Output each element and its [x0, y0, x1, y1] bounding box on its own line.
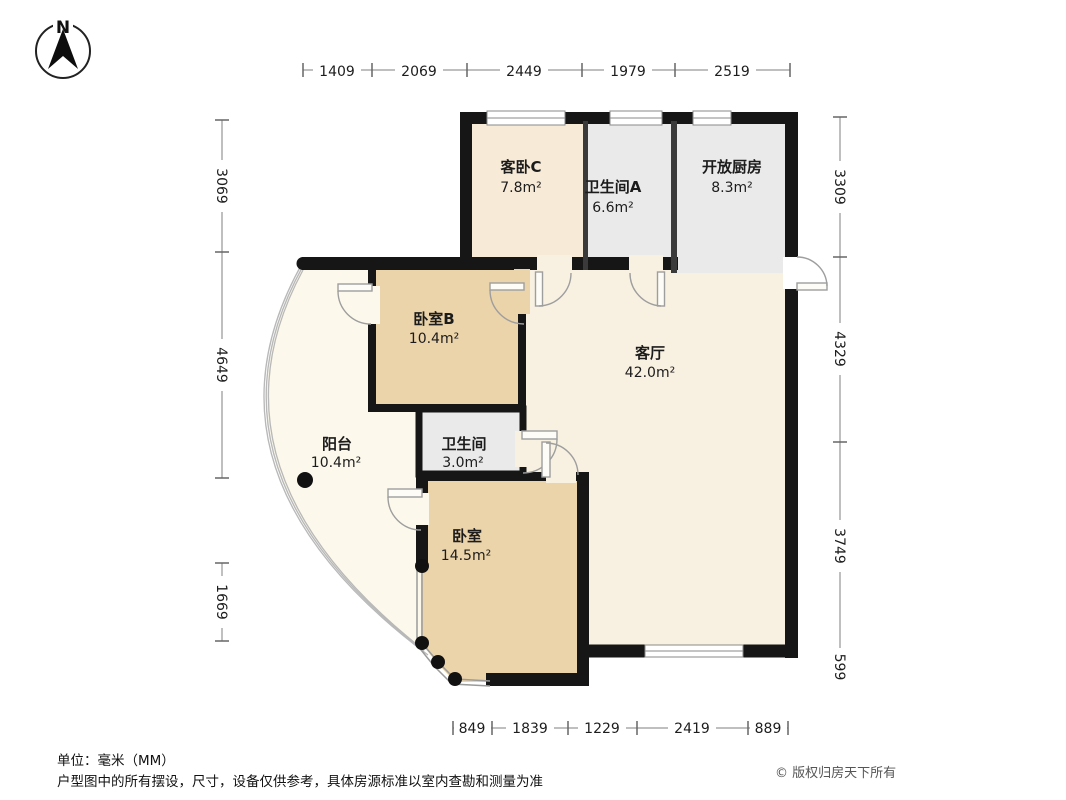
dim-left-3: 1669	[213, 584, 229, 620]
bay-post-1	[415, 559, 429, 573]
room-label-bedroom-main: 卧室	[452, 527, 482, 545]
dimension-top: 1409 2069 2449 1979 2519	[303, 62, 790, 80]
dim-right-3: 3749	[831, 528, 847, 564]
north-arrow-icon	[48, 29, 78, 69]
door-leaf-bedroom-balcony	[388, 489, 422, 497]
dim-right-2: 4329	[831, 331, 847, 367]
dim-right-1: 3309	[831, 169, 847, 205]
wall-bedroom-bottom	[486, 673, 589, 686]
door-gap-guestc	[537, 255, 572, 272]
door-leaf-guestc	[536, 272, 543, 306]
room-label-bathA: 卫生间A	[585, 178, 642, 196]
copyright-note: © 版权归房天下所有	[775, 762, 896, 781]
dimension-right: 3309 4329 3749 599	[831, 117, 848, 686]
floorplan-stage: N	[0, 0, 1066, 800]
door-leaf-bath-small	[522, 431, 557, 439]
door-leaf-bedroomB-balcony	[338, 284, 372, 291]
door-gap-bedroomB	[514, 269, 530, 314]
door-leaf-bedroom-main	[542, 442, 550, 477]
dim-bottom-1: 849	[459, 721, 486, 737]
room-area-bedroom-main: 14.5m²	[441, 548, 491, 564]
dim-top-1: 1409	[319, 64, 355, 80]
room-area-living: 42.0m²	[625, 365, 675, 381]
wall-mid-cap	[297, 257, 310, 270]
dim-bottom-4: 2419	[674, 721, 710, 737]
compass: N	[36, 15, 90, 78]
dim-top-5: 2519	[714, 64, 750, 80]
room-area-bath-small: 3.0m²	[442, 455, 484, 471]
railing-post-dot	[297, 472, 313, 488]
dim-top-2: 2069	[401, 64, 437, 80]
bay-post-3	[431, 655, 445, 669]
room-area-balcony: 10.4m²	[311, 455, 361, 471]
wall-mid-band	[302, 257, 678, 270]
unit-note: 单位：毫米（MM）	[57, 749, 175, 769]
room-label-living: 客厅	[634, 344, 665, 362]
door-leaf-right	[797, 283, 827, 290]
room-label-bath-small: 卫生间	[441, 435, 486, 453]
door-gap-bedroom-balcony	[415, 493, 429, 525]
bay-post-2	[415, 636, 429, 650]
room-label-balcony: 阳台	[322, 435, 352, 453]
room-area-kitchen: 8.3m²	[711, 180, 753, 196]
dimension-bottom: 849 1839 1229 2419 889	[453, 720, 788, 737]
dim-bottom-5: 889	[755, 721, 782, 737]
bedroom-main-floor	[420, 472, 585, 682]
dim-right-4: 599	[831, 654, 847, 681]
floorplan-svg: N	[0, 0, 1066, 800]
wall-right	[785, 112, 798, 658]
room-label-kitchen: 开放厨房	[702, 158, 762, 176]
room-area-bedroomB: 10.4m²	[409, 331, 459, 347]
room-area-guestc: 7.8m²	[500, 180, 542, 196]
dim-left-2: 4649	[213, 347, 229, 383]
room-area-bathA: 6.6m²	[592, 200, 634, 216]
disclaimer-note: 户型图中的所有摆设，尺寸，设备仅供参考，具体房源标准以室内查勘和测量为准	[57, 770, 543, 790]
room-label-bedroomB: 卧室B	[413, 310, 454, 328]
door-leaf-bedroomB	[490, 283, 524, 290]
dim-top-3: 2449	[506, 64, 542, 80]
door-arc-right	[797, 257, 827, 286]
wall-left-top	[460, 112, 472, 270]
partition-bathA-kitchen	[671, 121, 677, 273]
dim-bottom-2: 1839	[512, 721, 548, 737]
door-leaf-bathA	[658, 272, 665, 306]
door-gap-bedroomB-balcony	[363, 286, 380, 324]
door-gap-bathA	[629, 255, 663, 272]
dim-top-4: 1979	[610, 64, 646, 80]
bay-post-4	[448, 672, 462, 686]
room-label-guestc: 客卧C	[499, 158, 541, 176]
dim-left-1: 3069	[213, 168, 229, 204]
dimension-left: 3069 4649 1669	[213, 120, 230, 641]
dim-bottom-3: 1229	[584, 721, 620, 737]
